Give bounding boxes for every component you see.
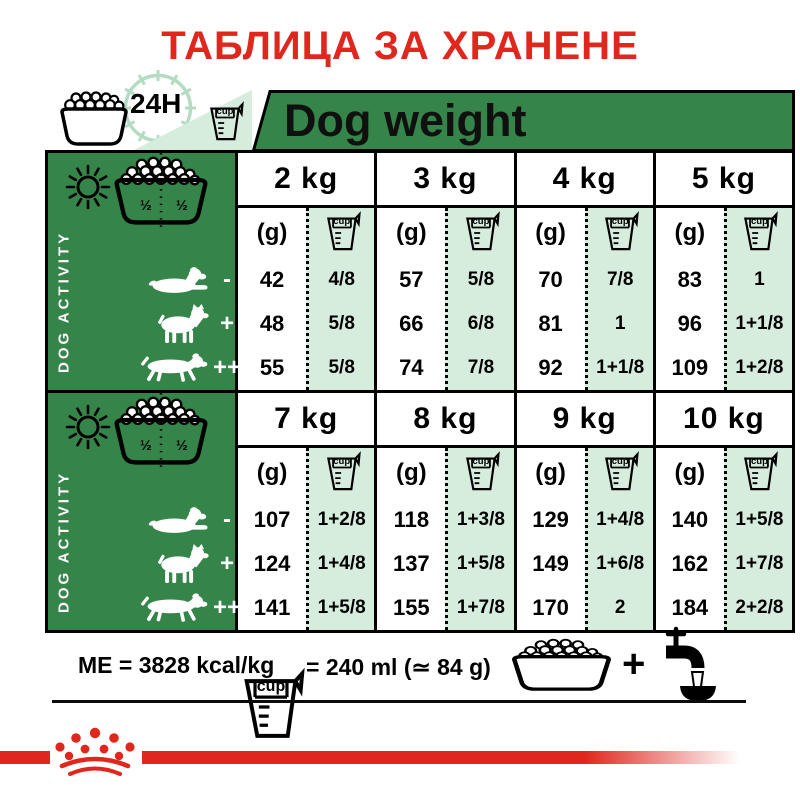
- cups-value: 1+1/8: [727, 302, 792, 346]
- cups-value: 1+1/8: [588, 346, 653, 390]
- split-bowl-icon: [105, 393, 217, 474]
- grams-value: 162: [656, 542, 724, 586]
- grams-value: 109: [656, 346, 724, 390]
- lying-dog-icon: [144, 266, 216, 295]
- dog-activity-sidebar: ½ ½ DOG ACTIVITY -: [48, 153, 235, 390]
- grams-value: 66: [377, 302, 445, 346]
- cup-label: cup: [742, 456, 776, 467]
- cup-label: cup: [464, 216, 498, 227]
- weight-header: 5 kg: [656, 153, 792, 208]
- activity-symbol-medium: +: [214, 542, 240, 586]
- activity-row-high: ++: [48, 586, 235, 630]
- activity-row-medium: +: [48, 302, 235, 346]
- activity-row-low: -: [48, 258, 235, 302]
- grams-unit-label: (g): [377, 448, 445, 498]
- cup-label: cup: [603, 216, 637, 227]
- cups-value: 4/8: [309, 258, 374, 302]
- cups-value: 5/8: [309, 346, 374, 390]
- grams-value: 124: [238, 542, 306, 586]
- red-band-right: [142, 751, 740, 764]
- running-dog-icon: [136, 352, 212, 386]
- running-dog-icon: [136, 592, 212, 626]
- cups-value: 5/8: [309, 302, 374, 346]
- cups-value: 1+7/8: [448, 586, 513, 630]
- weight-header: 10 kg: [656, 393, 792, 448]
- cup-label: cup: [325, 216, 359, 227]
- grams-value: 149: [517, 542, 585, 586]
- grams-value: 70: [517, 258, 585, 302]
- half-portion-right: ½: [176, 197, 188, 213]
- weight-header: 2 kg: [238, 153, 374, 208]
- cup-icon: cup: [240, 672, 302, 742]
- grams-value: 55: [238, 346, 306, 390]
- grams-unit-label: (g): [377, 208, 445, 258]
- cups-value: 1+2/8: [309, 498, 374, 542]
- cups-value: 1+2/8: [727, 346, 792, 390]
- grams-value: 107: [238, 498, 306, 542]
- dog-weight-label: Dog weight: [284, 95, 526, 147]
- cup-label: cup: [742, 216, 776, 227]
- cup-icon: cup: [325, 213, 359, 253]
- weight-column-7kg: 7 kg (g) 107 124 141 cup 1+2/8: [235, 393, 374, 630]
- lying-dog-icon: [144, 506, 216, 535]
- cups-value: 1+3/8: [448, 498, 513, 542]
- weight-header: 9 kg: [517, 393, 653, 448]
- cup-label: cup: [325, 456, 359, 467]
- cups-value: 1: [588, 302, 653, 346]
- grams-value: 170: [517, 586, 585, 630]
- cups-value: 7/8: [448, 346, 513, 390]
- grams-value: 155: [377, 586, 445, 630]
- cup-equivalence-label: = 240 ml (≃ 84 g): [306, 654, 491, 681]
- grams-value: 81: [517, 302, 585, 346]
- standing-dog-icon: [152, 544, 214, 583]
- cups-value: 1+5/8: [727, 498, 792, 542]
- table-large-weights: ½ ½ DOG ACTIVITY -: [48, 393, 792, 630]
- weight-column-3kg: 3 kg (g) 57 66 74 cup 5/8: [374, 153, 513, 390]
- grams-unit-label: (g): [238, 208, 306, 258]
- cups-value: 1+5/8: [309, 586, 374, 630]
- grams-value: 96: [656, 302, 724, 346]
- cups-value: 1+6/8: [588, 542, 653, 586]
- cup-icon: cup: [742, 213, 776, 253]
- grams-unit-label: (g): [656, 448, 724, 498]
- grams-value: 118: [377, 498, 445, 542]
- cup-label: cup: [208, 106, 242, 117]
- moon-icon: [220, 406, 246, 440]
- cups-value: 6/8: [448, 302, 513, 346]
- feeding-table-page: ТАБЛИЦА ЗА ХРАНЕНЕ 24H cup: [0, 0, 800, 800]
- cups-value: 5/8: [448, 258, 513, 302]
- grams-unit-label: (g): [238, 448, 306, 498]
- weight-column-4kg: 4 kg (g) 70 81 92 cup 7/8: [514, 153, 653, 390]
- grams-value: 140: [656, 498, 724, 542]
- cups-value: 2+2/8: [727, 586, 792, 630]
- weight-column-10kg: 10 kg (g) 140 162 184 cup 1+5/8: [653, 393, 792, 630]
- cups-value: 1+4/8: [588, 498, 653, 542]
- feeding-tables: ½ ½ DOG ACTIVITY -: [45, 150, 795, 633]
- cups-value: 1+7/8: [727, 542, 792, 586]
- cups-value: 1+5/8: [448, 542, 513, 586]
- grams-value: 184: [656, 586, 724, 630]
- dog-activity-sidebar: ½ ½ DOG ACTIVITY -: [48, 393, 235, 630]
- cup-icon: cup: [742, 453, 776, 493]
- weight-header: 7 kg: [238, 393, 374, 448]
- cup-label: cup: [240, 678, 302, 696]
- grams-value: 74: [377, 346, 445, 390]
- cup-icon: cup: [464, 213, 498, 253]
- weight-column-2kg: 2 kg (g) 42 48 55 cup 4/8: [235, 153, 374, 390]
- table-grid: 7 kg (g) 107 124 141 cup 1+2/8: [235, 393, 792, 630]
- red-band-left: [0, 751, 50, 764]
- moon-icon: [220, 166, 246, 200]
- food-bowl-icon: [62, 109, 126, 144]
- crown-logo: [52, 723, 140, 781]
- cups-value: 1+4/8: [309, 542, 374, 586]
- grams-value: 129: [517, 498, 585, 542]
- water-faucet-icon: [654, 626, 718, 702]
- clock-24h-label: 24H: [130, 88, 181, 120]
- grams-value: 42: [238, 258, 306, 302]
- grams-unit-label: (g): [656, 208, 724, 258]
- grams-value: 137: [377, 542, 445, 586]
- weight-header: 8 kg: [377, 393, 513, 448]
- grams-value: 83: [656, 258, 724, 302]
- cup-icon: cup: [325, 453, 359, 493]
- plus-sign: +: [622, 642, 645, 687]
- activity-row-high: ++: [48, 346, 235, 390]
- activity-symbol-low: -: [214, 258, 240, 302]
- activity-row-low: -: [48, 498, 235, 542]
- weight-column-5kg: 5 kg (g) 83 96 109 cup 1: [653, 153, 792, 390]
- cup-icon: cup: [603, 213, 637, 253]
- half-portion-left: ½: [140, 197, 152, 213]
- cup-icon: cup: [464, 453, 498, 493]
- table-grid: 2 kg (g) 42 48 55 cup 4/8: [235, 153, 792, 390]
- cup-icon: cup: [208, 103, 242, 143]
- grams-value: 57: [377, 258, 445, 302]
- cup-label: cup: [603, 456, 637, 467]
- food-bowl-icon: [502, 636, 621, 698]
- cups-value: 1: [727, 258, 792, 302]
- half-portion-left: ½: [140, 437, 152, 453]
- cup-icon: cup: [603, 453, 637, 493]
- page-title: ТАБЛИЦА ЗА ХРАНЕНЕ: [0, 24, 800, 69]
- grams-value: 141: [238, 586, 306, 630]
- water-bowl-icon: [680, 686, 716, 701]
- standing-dog-icon: [152, 304, 214, 343]
- weight-header: 3 kg: [377, 153, 513, 208]
- footer-divider-line: [52, 700, 746, 703]
- cup-label: cup: [464, 456, 498, 467]
- table-small-weights: ½ ½ DOG ACTIVITY -: [48, 153, 792, 390]
- weight-column-9kg: 9 kg (g) 129 149 170 cup 1+4/8: [514, 393, 653, 630]
- grams-value: 48: [238, 302, 306, 346]
- grams-value: 92: [517, 346, 585, 390]
- split-bowl-icon: [105, 153, 217, 234]
- half-portion-right: ½: [176, 437, 188, 453]
- cups-value: 2: [588, 586, 653, 630]
- grams-unit-label: (g): [517, 448, 585, 498]
- cups-value: 7/8: [588, 258, 653, 302]
- weight-column-8kg: 8 kg (g) 118 137 155 cup 1+3/8: [374, 393, 513, 630]
- grams-unit-label: (g): [517, 208, 585, 258]
- activity-row-medium: +: [48, 542, 235, 586]
- activity-symbol-low: -: [214, 498, 240, 542]
- activity-symbol-medium: +: [214, 302, 240, 346]
- activity-symbol-high: ++: [214, 586, 240, 630]
- activity-symbol-high: ++: [214, 346, 240, 390]
- weight-header: 4 kg: [517, 153, 653, 208]
